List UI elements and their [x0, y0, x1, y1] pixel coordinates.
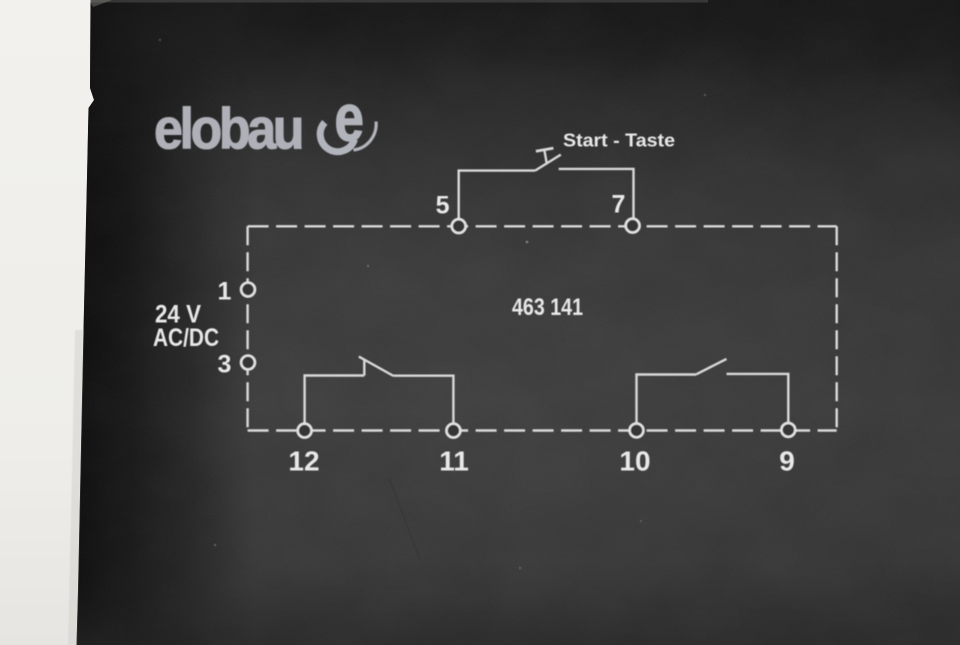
svg-text:9: 9 [779, 446, 795, 477]
svg-text:11: 11 [439, 446, 469, 477]
svg-text:12: 12 [288, 446, 319, 477]
svg-text:10: 10 [619, 446, 650, 477]
svg-text:5: 5 [436, 192, 450, 220]
svg-text:Start - Taste: Start - Taste [563, 131, 675, 151]
svg-text:1: 1 [218, 278, 232, 306]
svg-text:elobau: elobau [154, 97, 301, 161]
svg-text:7: 7 [611, 191, 625, 219]
svg-text:AC/DC: AC/DC [153, 324, 219, 352]
svg-text:463 141: 463 141 [512, 294, 583, 321]
svg-text:3: 3 [218, 351, 232, 379]
